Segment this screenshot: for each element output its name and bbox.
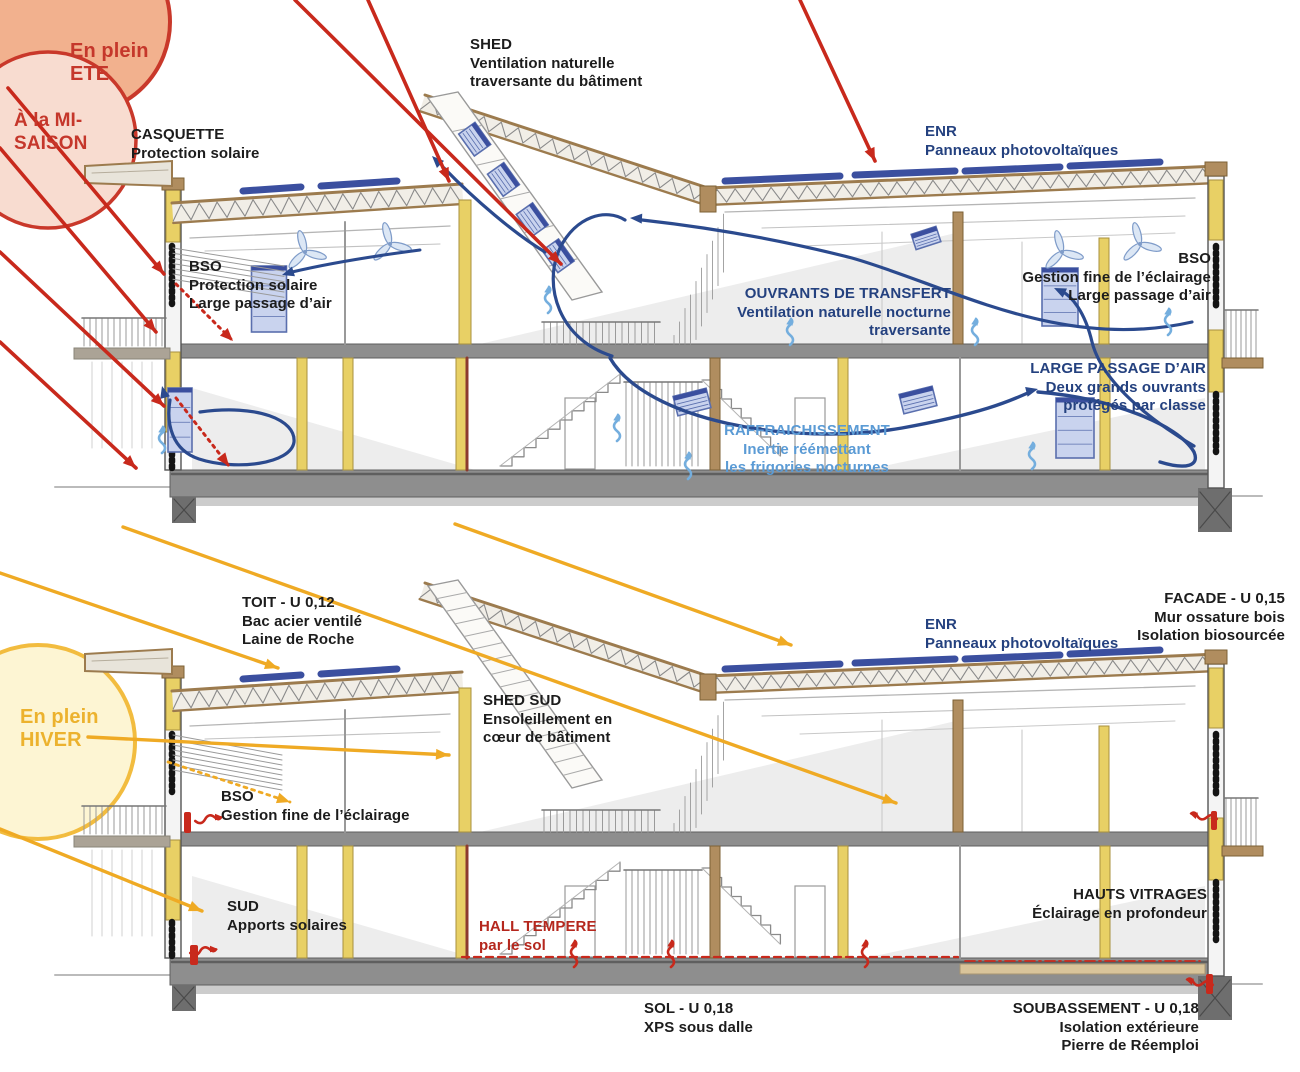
label-soubassement: SOUBASSEMENT - U 0,18 Isolation extérieu… — [1013, 1000, 1199, 1056]
label-bso-winter: BSO Gestion fine de l’éclairage — [221, 788, 410, 825]
label-large-passage-air: LARGE PASSAGE D’AIR Deux grands ouvrants… — [1030, 360, 1206, 416]
label-hauts-vitrages: HAUTS VITRAGES Éclairage en profondeur — [1032, 886, 1207, 923]
label-enr-winter: ENR Panneaux photovoltaïques — [925, 616, 1118, 653]
label-hall-tempere: HALL TEMPERE par le sol — [479, 918, 597, 955]
label-sun-misaison: À la MI- SAISON — [14, 110, 87, 156]
label-shed-sud: SHED SUD Ensoleillement en cœur de bâtim… — [483, 692, 612, 748]
label-bso-left: BSO Protection solaire Large passage d’a… — [189, 258, 332, 314]
label-sun-ete: En plein ETE — [70, 40, 149, 86]
label-enr-summer: ENR Panneaux photovoltaïques — [925, 123, 1118, 160]
label-sud: SUD Apports solaires — [227, 898, 347, 935]
label-sol: SOL - U 0,18 XPS sous dalle — [644, 1000, 753, 1037]
label-facade: FACADE - U 0,15 Mur ossature bois Isolat… — [1137, 590, 1285, 646]
label-shed: SHED Ventilation naturelle traversante d… — [470, 36, 642, 92]
label-raffraichissement: RAFFRAICHISSEMENT Inertie réémettant les… — [722, 422, 892, 478]
label-casquette: CASQUETTE Protection solaire — [131, 126, 260, 163]
label-sun-hiver: En plein HIVER — [20, 706, 99, 752]
label-toit: TOIT - U 0,12 Bac acier ventilé Laine de… — [242, 594, 362, 650]
bioclimatic-section-diagram: CASQUETTE Protection solaire SHED Ventil… — [0, 0, 1300, 1072]
label-ouvrants-transfert: OUVRANTS DE TRANSFERT Ventilation nature… — [737, 285, 951, 341]
label-bso-right: BSO Gestion fine de l’éclairage Large pa… — [1022, 250, 1211, 306]
